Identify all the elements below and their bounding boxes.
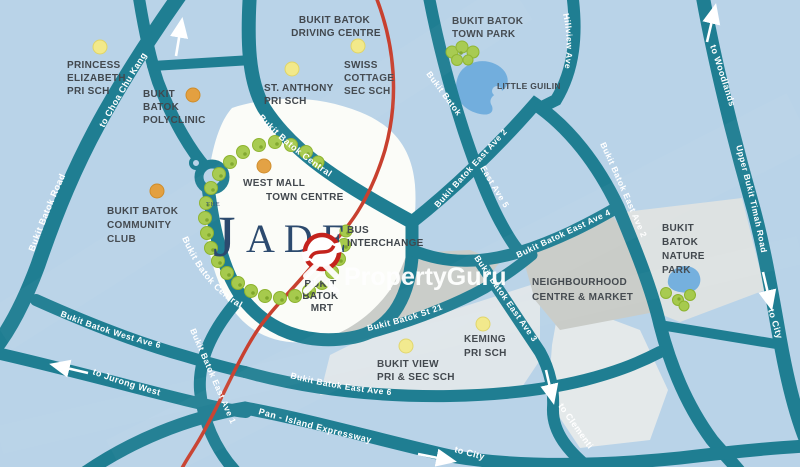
- roundabout-spur: [191, 158, 201, 168]
- dot-community-club: [150, 184, 164, 198]
- map-canvas: Bukit Batok Road to Choa Chu Kang Bukit …: [0, 0, 800, 467]
- label-town-centre: TOWN CENTRE: [266, 192, 344, 203]
- label-little-guilin: LITTLE GUILIN: [497, 81, 561, 91]
- location-map: Bukit Batok Road to Choa Chu Kang Bukit …: [0, 0, 800, 467]
- dot-polyclinic: [186, 88, 200, 102]
- watermark-brand: PropertyGuru: [344, 263, 507, 291]
- dot-st-anthony: [285, 62, 299, 76]
- dot-princess-elizabeth: [93, 40, 107, 54]
- road-connector-top: [152, 60, 252, 66]
- dot-swiss-cottage: [351, 39, 365, 53]
